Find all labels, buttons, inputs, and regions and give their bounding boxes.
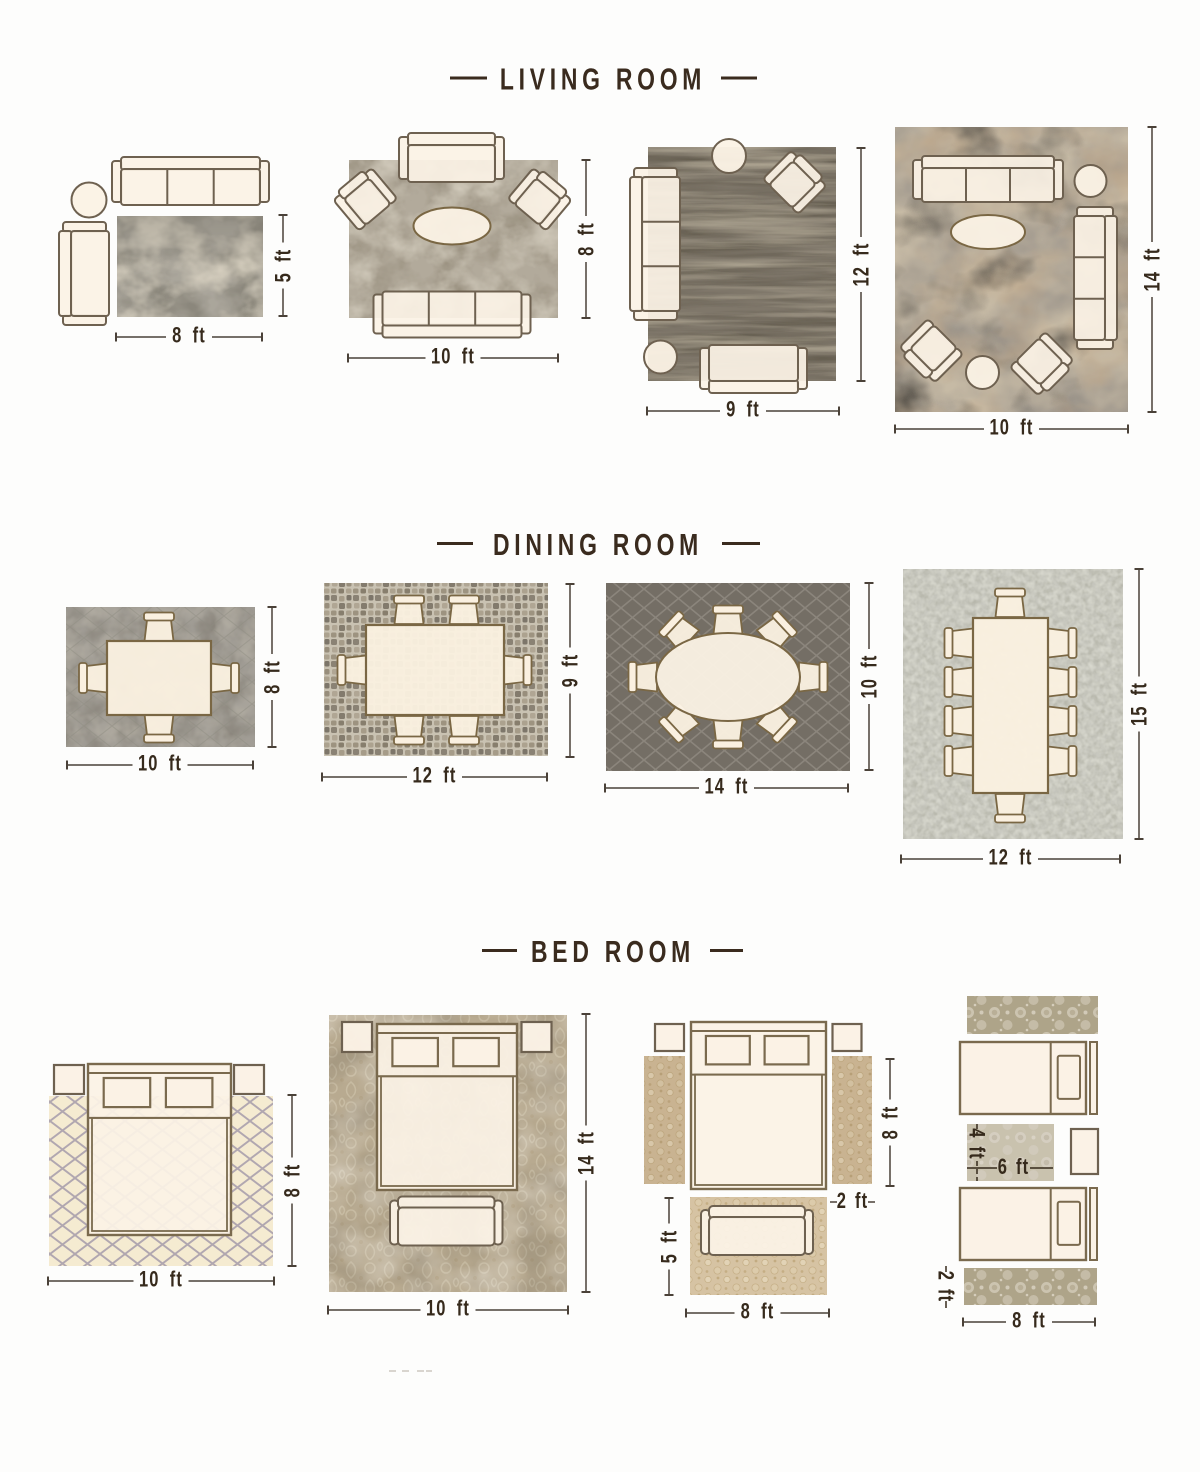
svg-text:8 ft: 8 ft [280, 1164, 305, 1198]
svg-text:2 ft: 2 ft [837, 1189, 869, 1214]
svg-text:14 ft: 14 ft [704, 774, 748, 799]
svg-text:8 ft: 8 ft [172, 323, 206, 348]
svg-text:12 ft: 12 ft [412, 763, 456, 788]
svg-text:8 ft: 8 ft [260, 660, 285, 694]
svg-text:9 ft: 9 ft [558, 654, 583, 688]
svg-text:14 ft: 14 ft [574, 1131, 599, 1175]
svg-text:5 ft: 5 ft [657, 1230, 682, 1264]
svg-text:9 ft: 9 ft [726, 397, 760, 422]
svg-text:LIVING ROOM: LIVING ROOM [500, 61, 706, 96]
svg-text:4 ft: 4 ft [964, 1128, 989, 1160]
svg-text:10 ft: 10 ft [139, 1267, 183, 1292]
svg-text:10 ft: 10 ft [426, 1296, 470, 1321]
svg-text:10 ft: 10 ft [857, 654, 882, 698]
svg-text:15 ft: 15 ft [1127, 682, 1152, 726]
svg-text:6 ft: 6 ft [998, 1155, 1030, 1180]
svg-text:5 ft: 5 ft [271, 249, 296, 283]
svg-text:10 ft: 10 ft [989, 415, 1033, 440]
svg-text:12 ft: 12 ft [988, 845, 1032, 870]
svg-text:DINING ROOM: DINING ROOM [493, 527, 703, 562]
svg-text:14 ft: 14 ft [1140, 247, 1165, 291]
svg-text:10 ft: 10 ft [431, 344, 475, 369]
svg-text:8 ft: 8 ft [574, 222, 599, 256]
svg-text:8 ft: 8 ft [741, 1299, 775, 1324]
svg-text:8 ft: 8 ft [1012, 1308, 1046, 1333]
svg-text:2 ft: 2 ft [933, 1271, 958, 1303]
svg-text:BED ROOM: BED ROOM [531, 934, 695, 969]
svg-text:8 ft: 8 ft [878, 1106, 903, 1140]
svg-text:10 ft: 10 ft [138, 751, 182, 776]
svg-text:12 ft: 12 ft [849, 242, 874, 286]
